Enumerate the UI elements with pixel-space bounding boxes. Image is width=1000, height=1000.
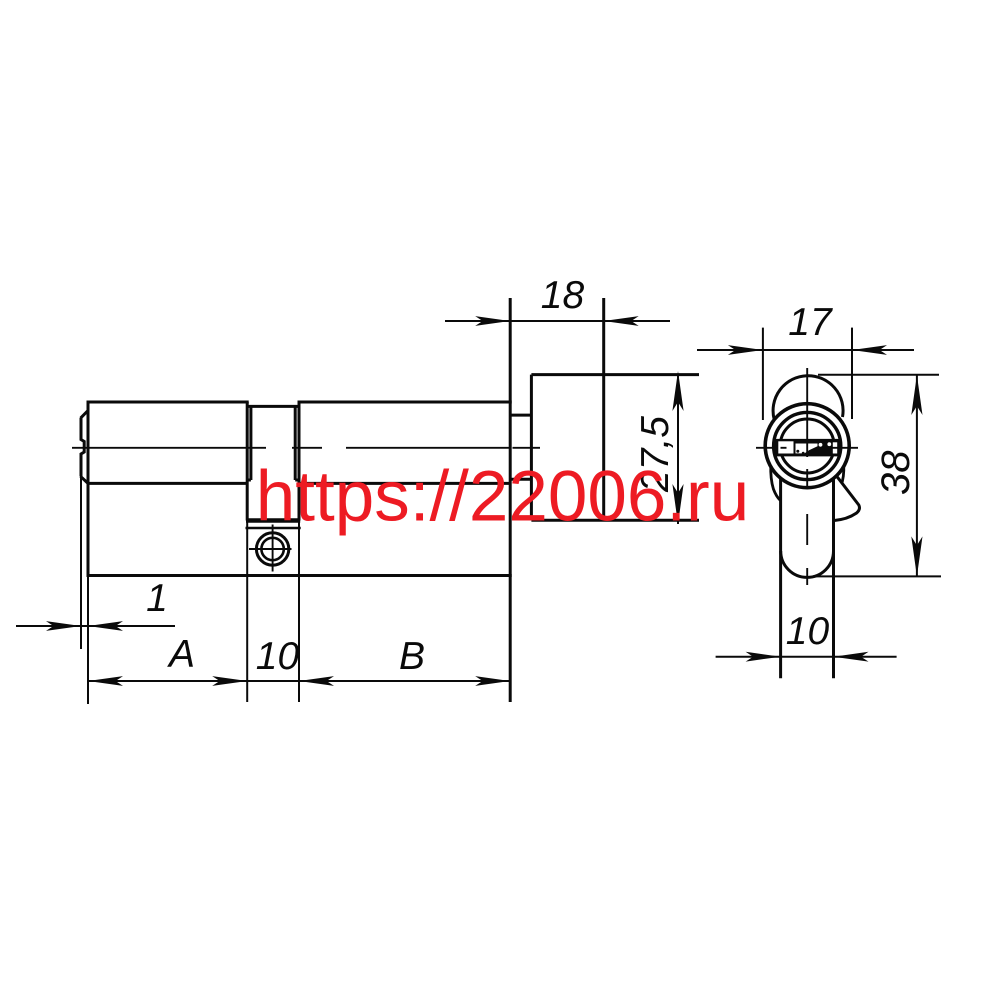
- svg-text:1: 1: [146, 577, 168, 620]
- svg-text:B: B: [399, 635, 425, 678]
- svg-text:38: 38: [874, 450, 918, 495]
- svg-text:https://22006.ru: https://22006.ru: [256, 458, 749, 537]
- svg-text:10: 10: [256, 635, 300, 678]
- svg-text:17: 17: [788, 301, 833, 344]
- svg-text:A: A: [167, 633, 195, 676]
- svg-text:18: 18: [541, 274, 585, 317]
- svg-text:10: 10: [786, 610, 830, 653]
